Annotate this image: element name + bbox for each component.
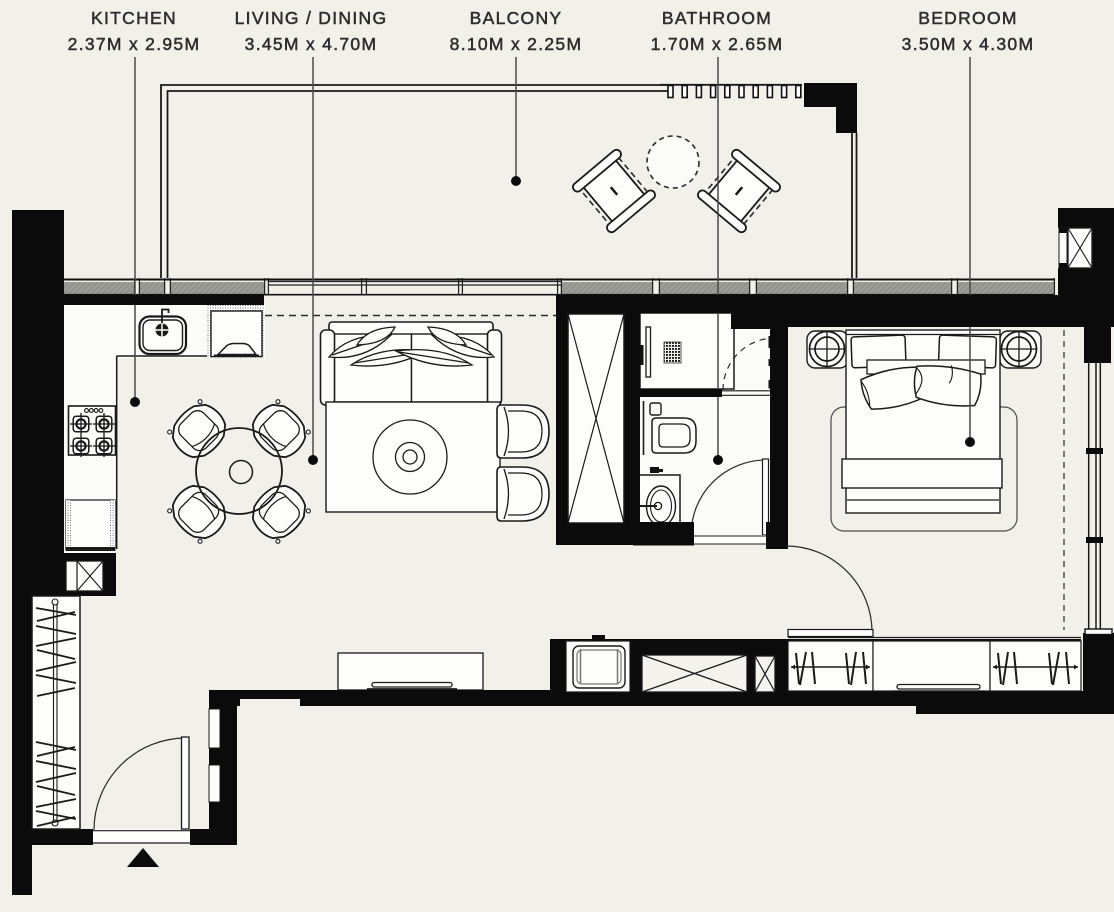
svg-text:KITCHEN: KITCHEN — [91, 8, 177, 28]
svg-text:2.37M x 2.95M: 2.37M x 2.95M — [68, 34, 201, 54]
svg-text:BATHROOM: BATHROOM — [662, 8, 772, 28]
svg-text:8.10M x 2.25M: 8.10M x 2.25M — [450, 34, 583, 54]
svg-text:3.50M x 4.30M: 3.50M x 4.30M — [902, 34, 1035, 54]
svg-text:3.45M x 4.70M: 3.45M x 4.70M — [245, 34, 378, 54]
svg-text:1.70M x 2.65M: 1.70M x 2.65M — [651, 34, 784, 54]
svg-text:BEDROOM: BEDROOM — [918, 8, 1018, 28]
svg-text:LIVING / DINING: LIVING / DINING — [235, 8, 388, 28]
svg-text:BALCONY: BALCONY — [470, 8, 563, 28]
